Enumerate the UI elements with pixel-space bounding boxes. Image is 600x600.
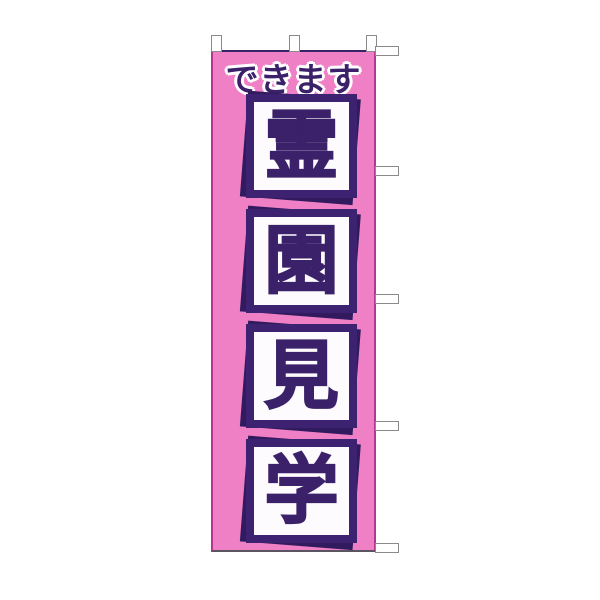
pole-tab-right-3 — [375, 294, 399, 304]
product-image-stage: できます 霊 園 見 学 — [0, 0, 600, 600]
kanji-box-face: 霊 — [246, 94, 357, 198]
kanji-box-3: 見 — [246, 324, 357, 428]
pole-tab-right-1 — [375, 46, 399, 56]
pole-tab-right-5 — [375, 543, 399, 553]
kanji-box-4: 学 — [246, 439, 357, 543]
kanji-box-face: 見 — [246, 324, 357, 428]
kanji-character: 園 — [265, 224, 339, 298]
kanji-box-1: 霊 — [246, 94, 357, 198]
pole-tab-right-4 — [375, 421, 399, 431]
pole-tab-top-center — [289, 35, 300, 52]
kanji-box-2: 園 — [246, 209, 357, 313]
kanji-character: 見 — [265, 339, 339, 413]
pole-tab-right-2 — [375, 166, 399, 176]
nobori-banner: できます 霊 園 見 学 — [211, 50, 376, 552]
pole-tab-top-left — [211, 35, 222, 52]
kanji-box-face: 学 — [246, 439, 357, 543]
kanji-character: 霊 — [265, 109, 339, 183]
kanji-box-face: 園 — [246, 209, 357, 313]
kanji-character: 学 — [265, 454, 339, 528]
